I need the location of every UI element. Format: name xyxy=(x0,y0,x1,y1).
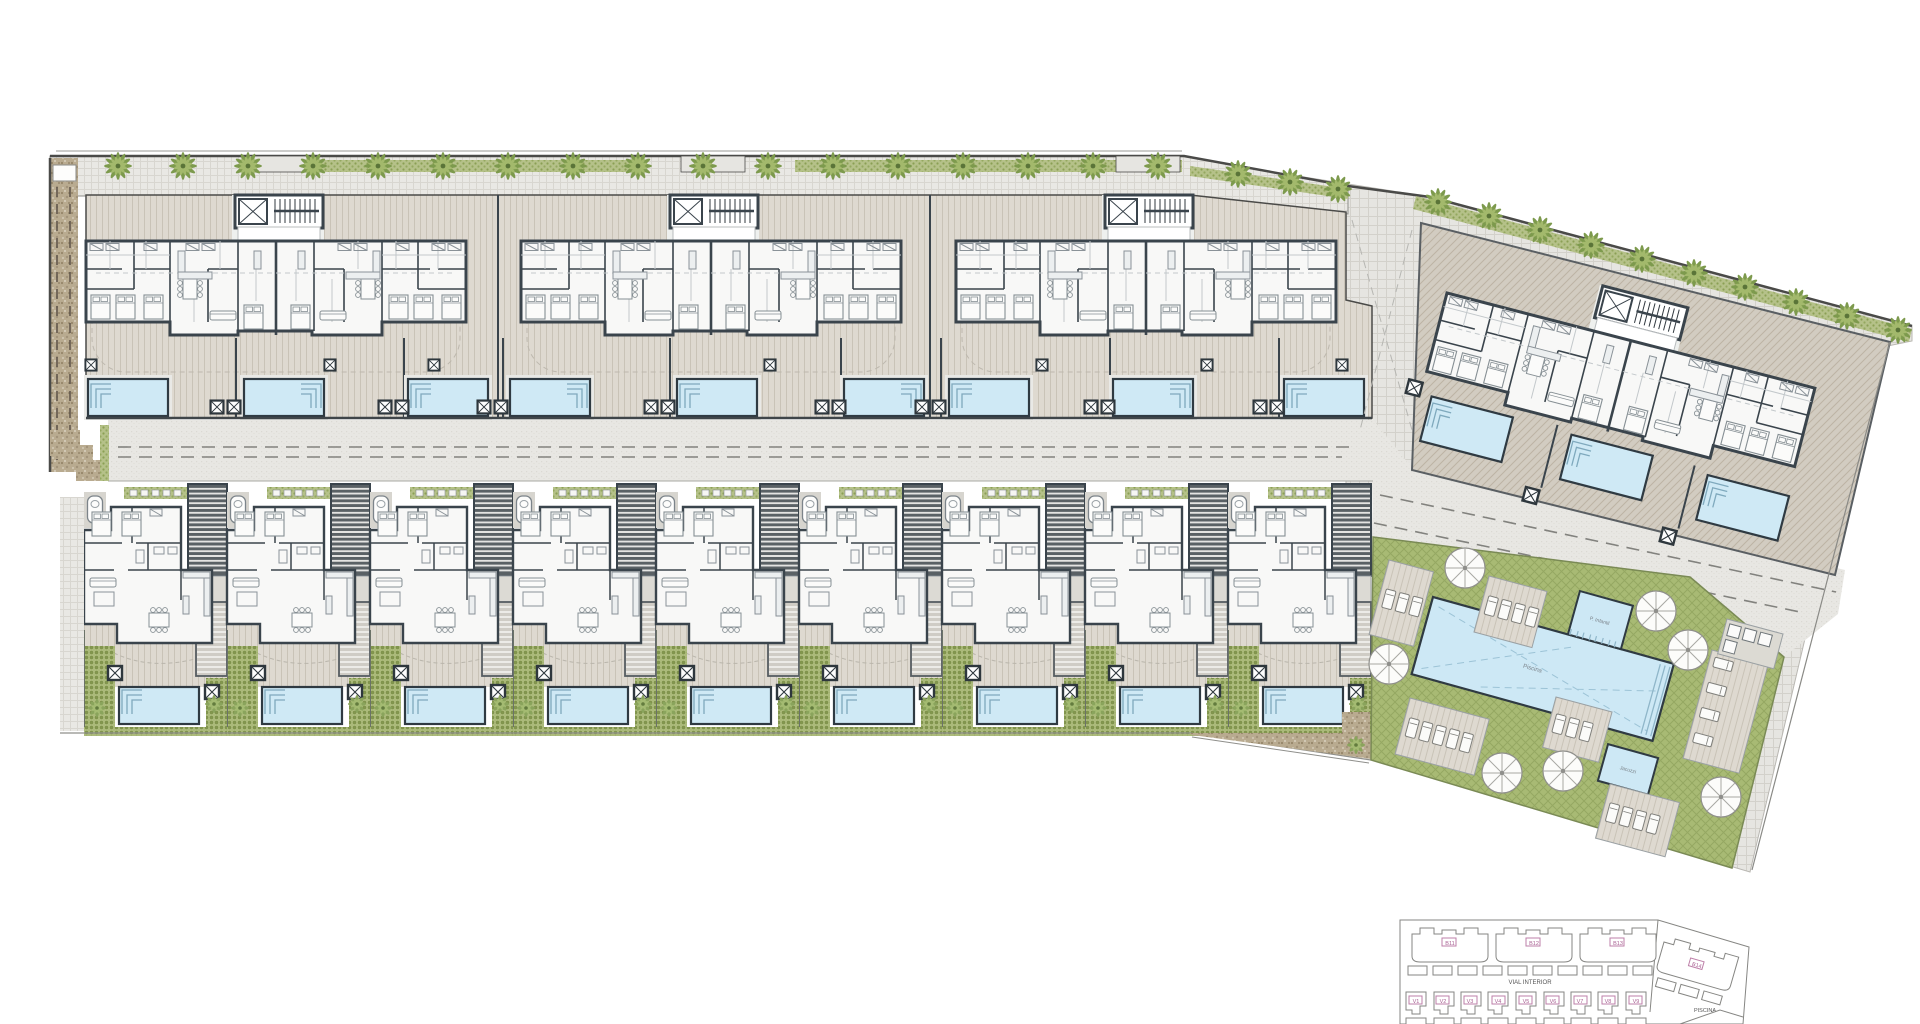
svg-text:PISCINA: PISCINA xyxy=(1694,1008,1716,1014)
svg-text:V6: V6 xyxy=(1550,999,1557,1005)
svg-text:B12: B12 xyxy=(1529,941,1539,947)
svg-text:V2: V2 xyxy=(1440,999,1447,1005)
svg-text:V9: V9 xyxy=(1633,999,1640,1005)
svg-text:V8: V8 xyxy=(1605,999,1612,1005)
svg-text:B13: B13 xyxy=(1613,941,1623,947)
svg-text:V1: V1 xyxy=(1413,999,1420,1005)
svg-text:B11: B11 xyxy=(1445,941,1454,947)
svg-text:V4: V4 xyxy=(1495,999,1502,1005)
svg-text:V7: V7 xyxy=(1577,999,1584,1005)
svg-text:V3: V3 xyxy=(1467,999,1474,1005)
svg-text:VIAL INTERIOR: VIAL INTERIOR xyxy=(1508,980,1552,986)
svg-text:V5: V5 xyxy=(1523,999,1530,1005)
